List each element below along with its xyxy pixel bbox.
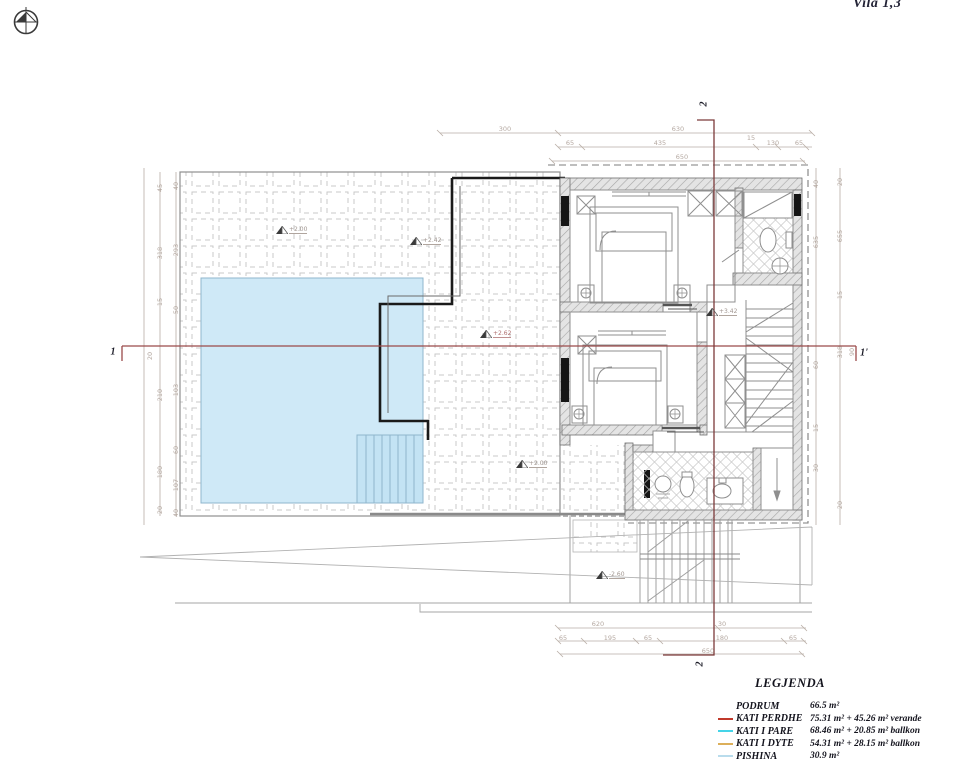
legend-area: 54.31 m² + 28.15 m² ballkon — [810, 739, 920, 749]
legend-area: 66.5 m² — [810, 701, 839, 711]
legend-area: 68.46 m² + 20.85 m² ballkon — [810, 726, 920, 736]
legend-row-pishina: PISHINA 30.9 m² — [718, 750, 956, 763]
driveway-ramp — [140, 527, 812, 612]
pool — [201, 278, 423, 503]
legend-name: KATI PERDHE — [736, 713, 810, 724]
legend-title: LEGJENDA — [755, 676, 956, 691]
legend-swatch — [718, 730, 733, 732]
legend-swatch — [718, 718, 733, 720]
bedroom-bottom-furniture — [572, 331, 683, 425]
legend-row-kati-perdhe: KATI PERDHE 75.31 m² + 45.26 m² verande — [718, 713, 956, 726]
legend-row-podrum: PODRUM 66.5 m² — [718, 700, 956, 713]
legend: LEGJENDA PODRUM 66.5 m² KATI PERDHE 75.3… — [718, 676, 956, 763]
floor-plan-sheet: Vila 1,3 — [0, 0, 959, 768]
interior-stairs — [725, 300, 793, 432]
legend-area: 30.9 m² — [810, 751, 839, 761]
legend-row-kati-i-pare: KATI I PARE 68.46 m² + 20.85 m² ballkon — [718, 725, 956, 738]
legend-name: KATI I DYTE — [736, 738, 810, 749]
floor-plan-drawing — [0, 0, 959, 768]
legend-swatch — [718, 705, 733, 707]
legend-swatch — [718, 743, 733, 745]
legend-area: 75.31 m² + 45.26 m² verande — [810, 714, 922, 724]
legend-name: PODRUM — [736, 701, 810, 712]
legend-name: KATI I PARE — [736, 726, 810, 737]
legend-row-kati-i-dyte: KATI I DYTE 54.31 m² + 28.15 m² ballkon — [718, 738, 956, 751]
legend-swatch — [718, 755, 733, 757]
legend-name: PISHINA — [736, 751, 810, 762]
bedroom-top-furniture — [577, 191, 742, 303]
